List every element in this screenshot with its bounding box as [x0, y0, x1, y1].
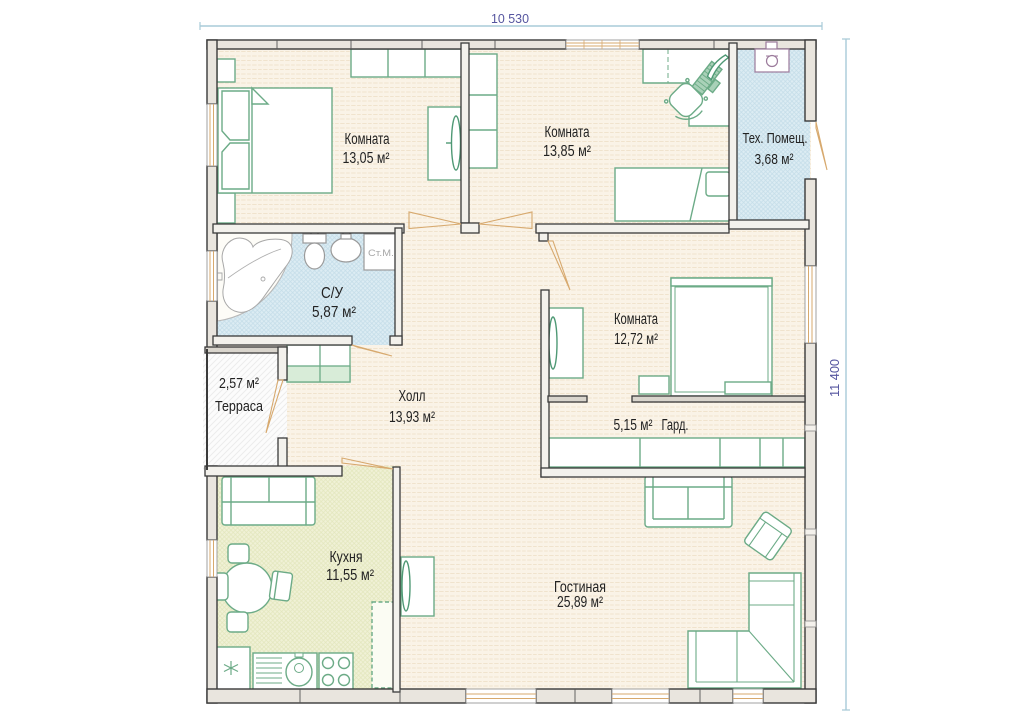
svg-text:Тех. Помещ.: Тех. Помещ.: [743, 130, 808, 147]
svg-text:Комната: Комната: [345, 131, 390, 148]
svg-text:11 400: 11 400: [827, 359, 842, 397]
svg-text:С/У: С/У: [321, 285, 343, 302]
svg-text:10 530: 10 530: [491, 11, 529, 26]
svg-text:Комната: Комната: [545, 124, 590, 141]
svg-text:2,57 м²: 2,57 м²: [219, 375, 259, 392]
svg-text:13,85 м²: 13,85 м²: [543, 143, 591, 160]
svg-text:25,89 м²: 25,89 м²: [557, 594, 603, 611]
svg-text:Кухня: Кухня: [330, 549, 363, 566]
svg-text:11,55 м²: 11,55 м²: [326, 567, 374, 584]
svg-text:5,87 м²: 5,87 м²: [312, 304, 356, 321]
svg-text:12,72 м²: 12,72 м²: [614, 331, 658, 348]
svg-text:13,05 м²: 13,05 м²: [343, 150, 390, 167]
svg-text:3,68 м²: 3,68 м²: [755, 151, 794, 168]
svg-text:Холл: Холл: [399, 388, 426, 405]
svg-text:Терраса: Терраса: [215, 398, 264, 415]
svg-text:Ст.М.: Ст.М.: [368, 248, 394, 258]
svg-text:Гард.: Гард.: [662, 417, 689, 434]
svg-text:5,15 м²: 5,15 м²: [614, 417, 653, 434]
svg-text:13,93 м²: 13,93 м²: [389, 409, 435, 426]
svg-text:Комната: Комната: [614, 311, 658, 328]
